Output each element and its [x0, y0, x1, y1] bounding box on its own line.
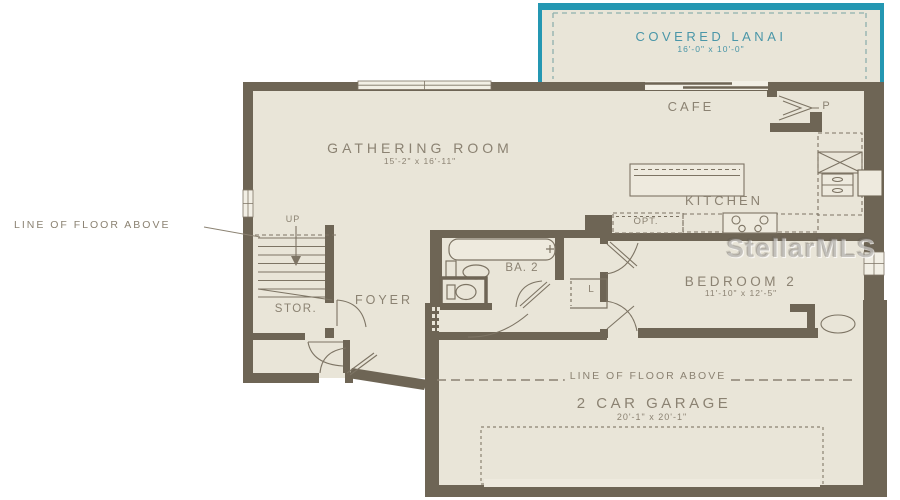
sliding-glass-door: [645, 81, 768, 90]
cooktop: [723, 213, 777, 233]
bath2-label: BA. 2: [505, 263, 538, 275]
lanai-label: COVERED LANAI: [636, 30, 787, 43]
stairs: [255, 226, 336, 300]
lanai-dims: 16'-0" x 10'-0": [677, 45, 744, 54]
toilet-tank: [447, 285, 455, 299]
closet-door: [308, 342, 343, 366]
hall-garage-door: [606, 301, 637, 331]
optional-label: OPT.: [633, 217, 658, 227]
gathering-room-label: GATHERING ROOM: [327, 141, 513, 155]
stairs-up-label: UP: [286, 215, 301, 224]
kitchen-label: KITCHEN: [685, 194, 763, 207]
garage-entry-opening: [434, 307, 439, 331]
gathering-room-dims: 15'-2" x 16'-11": [384, 157, 456, 166]
bedroom2-dims: 11'-10" x 12'-5": [705, 289, 777, 298]
storage-label: STOR.: [275, 304, 317, 316]
vanity-cabinet: [446, 261, 456, 277]
kitchen-island: [630, 164, 744, 196]
garage-door-outline: [481, 427, 823, 484]
pantry-bifold-door: [779, 96, 819, 120]
pantry-label: P: [822, 101, 829, 112]
bathtub: [449, 239, 555, 260]
bedroom-door: [606, 242, 638, 274]
watermark: StellarMLS: [726, 233, 876, 264]
entry-angled-wall: [348, 368, 428, 390]
bedroom2-label: BEDROOM 2: [685, 275, 798, 289]
water-closet-walls: [441, 278, 486, 306]
garage-door-panel: [484, 479, 820, 487]
up-arrow-head: [291, 256, 301, 266]
floor-above-left-label: LINE OF FLOOR ABOVE: [14, 220, 170, 231]
hall-arch: [468, 314, 528, 337]
cafe-label: CAFE: [668, 100, 715, 113]
floor-plan: COVERED LANAI 16'-0" x 10'-0" CAFE P GAT…: [0, 0, 900, 500]
garage-dims: 20'-1" x 20'-1": [617, 413, 687, 422]
bath-door: [516, 281, 550, 308]
utility-tub: [821, 315, 855, 333]
floor-above-leader-line: [204, 227, 260, 237]
foyer-label: FOYER: [355, 294, 413, 307]
linen-label: L: [588, 285, 594, 295]
appliance-recess-box: [858, 170, 882, 196]
floor-above-garage-label: LINE OF FLOOR ABOVE: [565, 371, 731, 382]
toilet-bowl: [456, 285, 476, 300]
garage-label: 2 CAR GARAGE: [577, 396, 732, 411]
